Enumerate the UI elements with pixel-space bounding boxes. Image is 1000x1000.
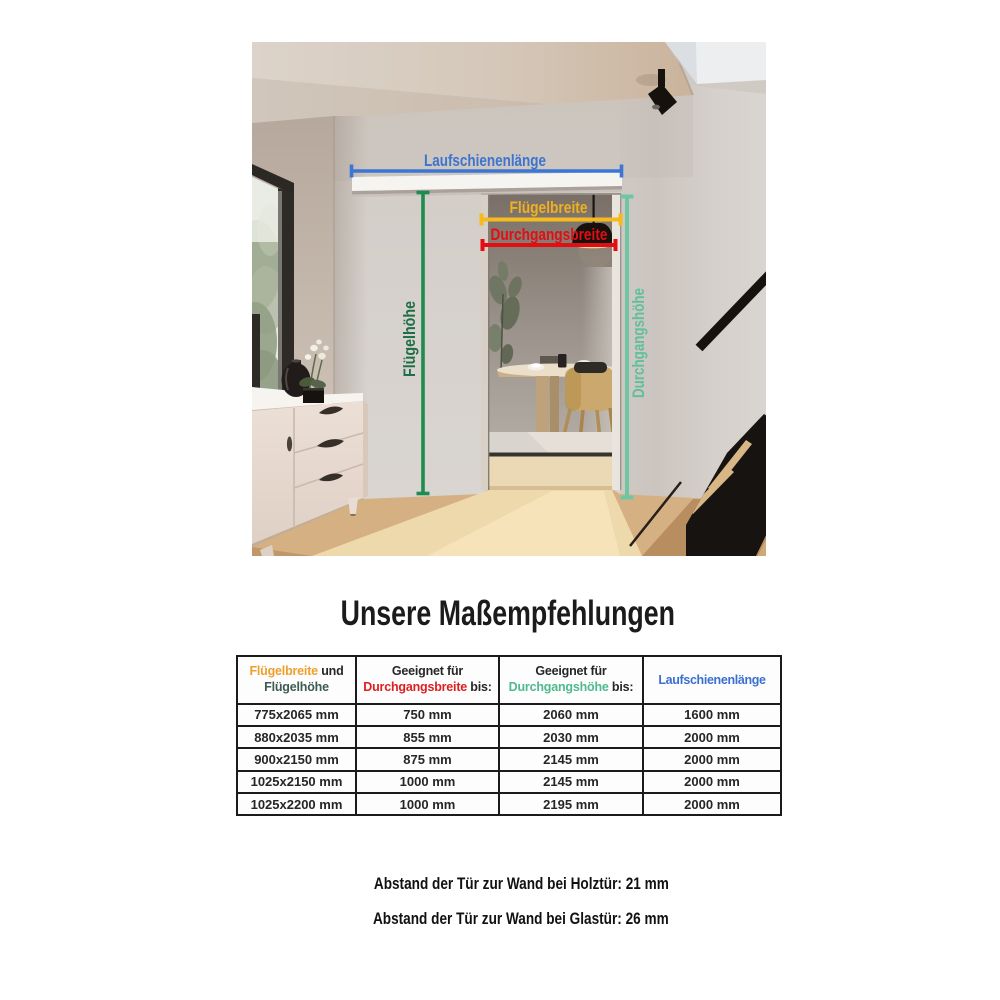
svg-text:Flügelbreite: Flügelbreite — [510, 199, 588, 217]
svg-text:Durchgangshöhe: Durchgangshöhe — [629, 288, 648, 398]
svg-text:Flügelhöhe: Flügelhöhe — [401, 301, 419, 377]
svg-text:Durchgangsbreite: Durchgangsbreite — [491, 226, 608, 244]
svg-text:Laufschienenlänge: Laufschienenlänge — [424, 152, 546, 170]
